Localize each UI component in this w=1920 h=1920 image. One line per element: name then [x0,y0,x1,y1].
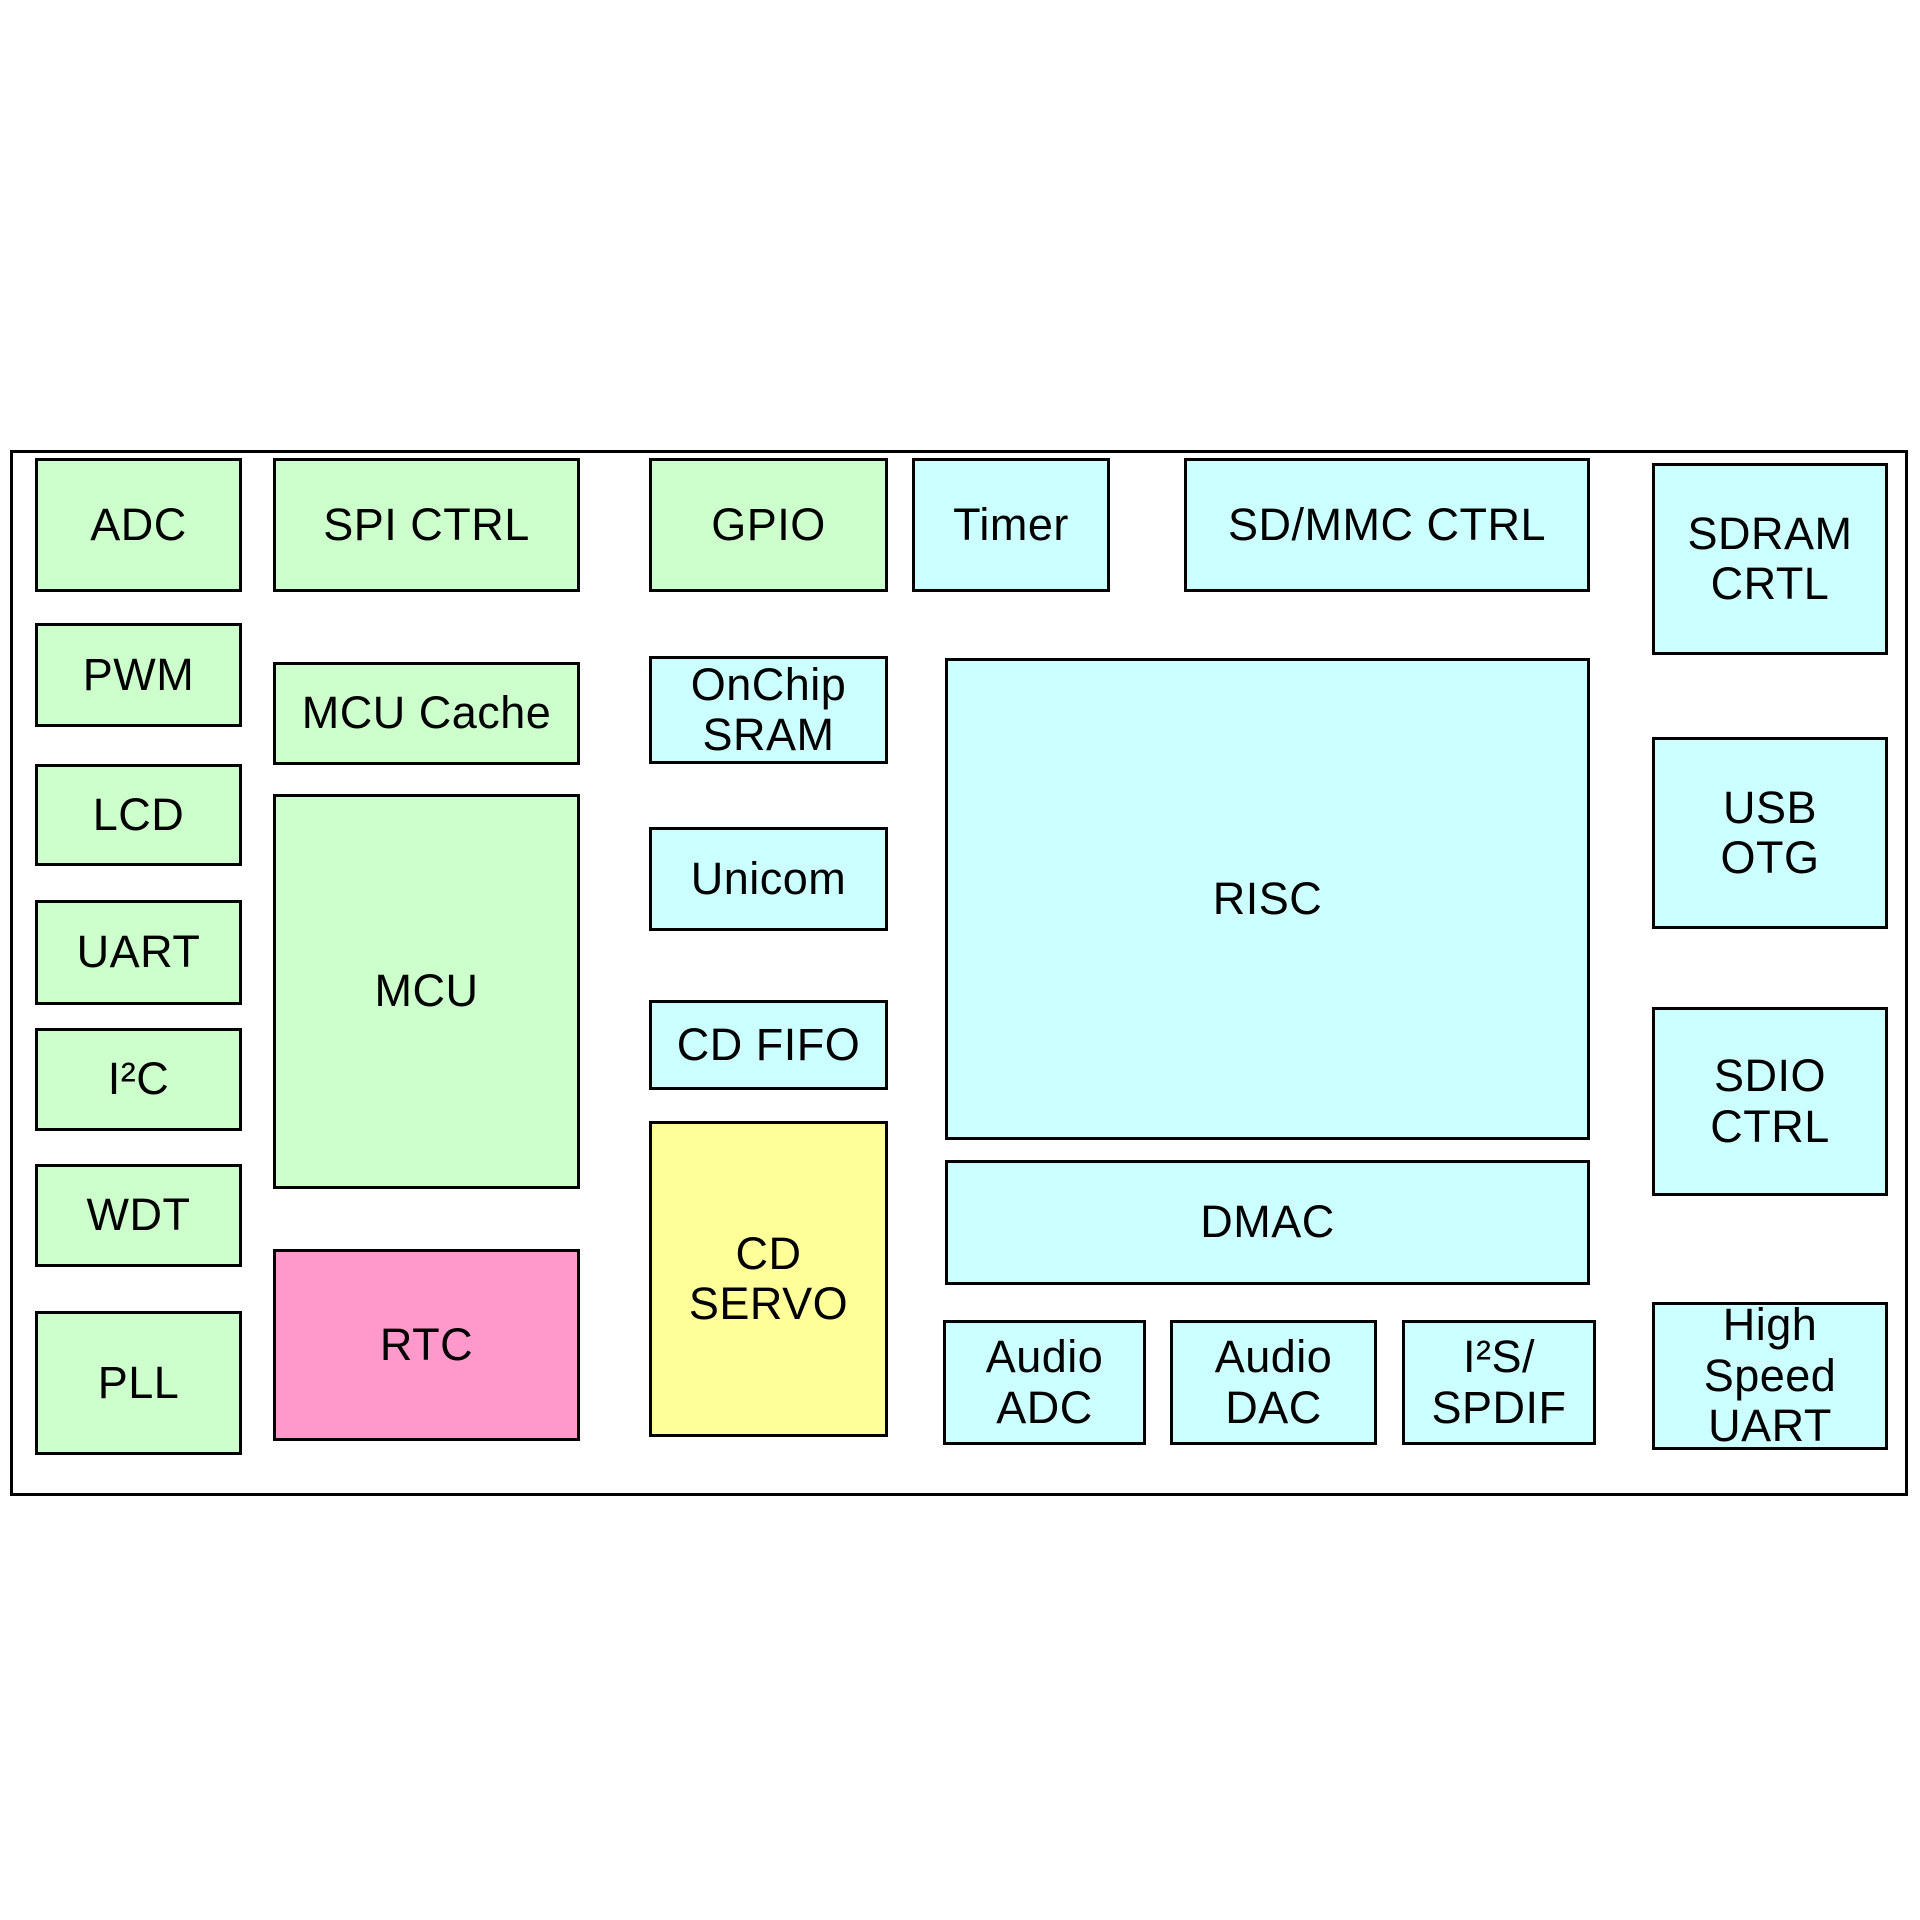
block-label: SERVO [689,1279,848,1329]
block-pll: PLL [35,1311,242,1455]
block-label: Audio [986,1332,1104,1382]
block-i2s-spdif: I²S/SPDIF [1402,1320,1596,1445]
block-label: SD/MMC CTRL [1228,500,1546,550]
block-audio-adc: AudioADC [943,1320,1146,1445]
block-label: OTG [1721,833,1820,883]
block-label: SDIO [1714,1051,1826,1101]
block-label: PWM [83,650,194,700]
block-label: GPIO [711,500,826,550]
block-cd-fifo: CD FIFO [649,1000,888,1090]
block-sd-mmc-ctrl: SD/MMC CTRL [1184,458,1590,592]
block-sdram-crtl: SDRAMCRTL [1652,463,1888,655]
block-unicom: Unicom [649,827,888,931]
block-label: UART [77,927,201,977]
soc-block-diagram: ADCSPI CTRLGPIOTimerSD/MMC CTRLSDRAMCRTL… [0,0,1920,1920]
block-high-speed-uart: HighSpeedUART [1652,1302,1888,1450]
block-label: Unicom [691,854,847,904]
block-label: LCD [93,790,185,840]
block-gpio: GPIO [649,458,888,592]
block-mcu-cache: MCU Cache [273,662,580,765]
block-label: ADC [996,1383,1093,1433]
block-adc: ADC [35,458,242,592]
block-label: SPDIF [1431,1383,1566,1433]
block-label: RTC [380,1320,473,1370]
block-cd-servo: CDSERVO [649,1121,888,1437]
block-pwm: PWM [35,623,242,727]
block-lcd: LCD [35,764,242,866]
block-label: SRAM [702,710,834,760]
block-label: CTRL [1710,1102,1830,1152]
block-spi-ctrl: SPI CTRL [273,458,580,592]
block-label: WDT [87,1190,191,1240]
block-label: DMAC [1200,1197,1335,1247]
block-timer: Timer [912,458,1110,592]
block-label: SDRAM [1687,509,1852,559]
block-label: Audio [1215,1332,1333,1382]
block-label: MCU [375,966,479,1016]
block-dmac: DMAC [945,1160,1590,1285]
block-onchip-sram: OnChipSRAM [649,656,888,764]
block-label: ADC [90,500,187,550]
block-usb-otg: USBOTG [1652,737,1888,929]
block-uart: UART [35,900,242,1005]
block-label: USB [1723,783,1817,833]
block-label: Timer [953,500,1069,550]
block-label: OnChip [691,660,847,710]
block-label: SPI CTRL [323,500,530,550]
block-label: CD [736,1229,802,1279]
block-label: DAC [1225,1383,1322,1433]
block-label: RISC [1213,874,1323,924]
block-label: CRTL [1711,559,1830,609]
block-label: PLL [98,1358,180,1408]
block-i2c: I²C [35,1028,242,1131]
block-label: I²C [108,1054,170,1104]
block-label: MCU Cache [302,688,552,738]
block-label: High [1723,1300,1818,1350]
block-label: Speed [1704,1351,1837,1401]
block-label: I²S/ [1463,1332,1535,1382]
block-mcu: MCU [273,794,580,1189]
block-risc: RISC [945,658,1590,1140]
block-label: UART [1708,1401,1832,1451]
block-wdt: WDT [35,1164,242,1267]
block-label: CD FIFO [677,1020,860,1070]
block-audio-dac: AudioDAC [1170,1320,1377,1445]
block-rtc: RTC [273,1249,580,1441]
block-sdio-ctrl: SDIOCTRL [1652,1007,1888,1196]
